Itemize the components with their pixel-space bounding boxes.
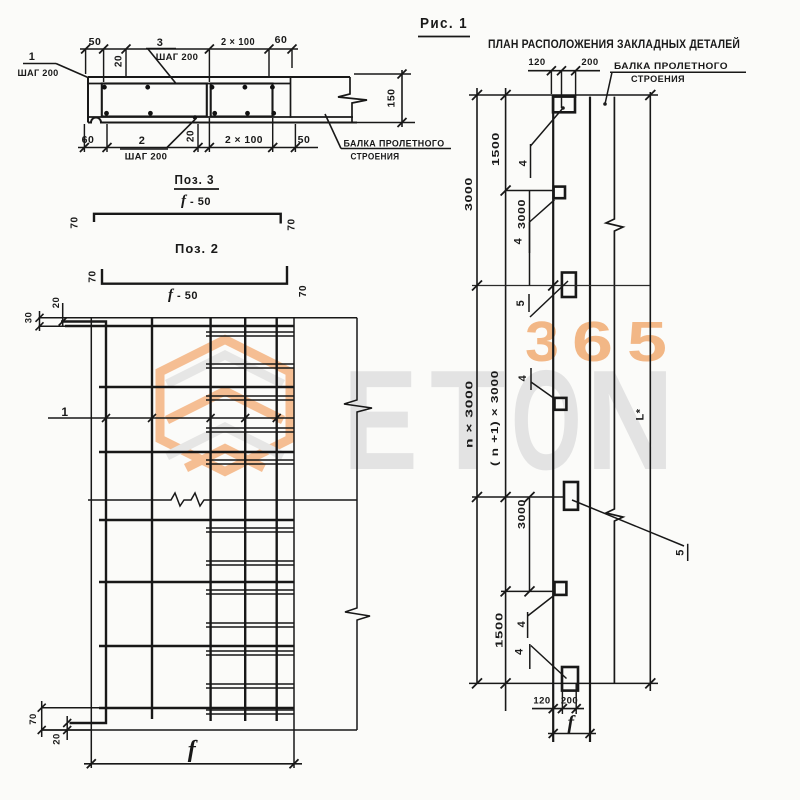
svg-text:70: 70 [298,285,309,297]
svg-text:1500: 1500 [490,132,502,166]
svg-text:Рис. 1: Рис. 1 [420,15,468,32]
svg-text:5: 5 [627,310,667,374]
svg-text:4: 4 [513,648,525,655]
svg-text:E: E [343,341,418,500]
svg-text:150: 150 [386,88,398,107]
svg-text:1: 1 [61,405,68,419]
svg-text:БАЛКА ПРОЛЕТНОГО: БАЛКА ПРОЛЕТНОГО [614,61,728,71]
svg-text:200: 200 [561,696,578,707]
svg-text:4: 4 [516,620,528,627]
svg-text:2 × 100: 2 × 100 [225,134,263,146]
svg-text:50: 50 [89,36,102,48]
svg-text:2: 2 [139,135,146,147]
svg-text:СТРОЕНИЯ: СТРОЕНИЯ [351,152,400,162]
svg-text:Поз. 3: Поз. 3 [175,173,215,187]
svg-text:ШАГ 200: ШАГ 200 [125,152,167,163]
svg-text:120: 120 [528,57,545,68]
svg-text:4: 4 [512,237,524,244]
svg-text:6: 6 [572,310,613,374]
svg-text:3000: 3000 [516,499,528,529]
svg-text:n × 3000: n × 3000 [464,380,476,448]
svg-text:4: 4 [517,159,529,166]
svg-text:f - 50: f - 50 [181,193,211,209]
svg-text:ПЛАН РАСПОЛОЖЕНИЯ ЗАКЛАДНЫХ: ПЛАН РАСПОЛОЖЕНИЯ ЗАКЛАДНЫХ ДЕТАЛЕЙ [488,38,740,51]
svg-text:30: 30 [23,312,34,324]
svg-text:( n +1) × 3000: ( n +1) × 3000 [489,370,501,466]
svg-text:60: 60 [275,34,288,46]
svg-text:СТРОЕНИЯ: СТРОЕНИЯ [631,74,685,84]
svg-text:4: 4 [517,374,529,381]
svg-text:50: 50 [298,134,311,146]
svg-text:5: 5 [675,549,687,556]
svg-text:20: 20 [51,297,62,309]
svg-text:1: 1 [29,51,36,63]
svg-text:ШАГ 200: ШАГ 200 [18,68,59,79]
svg-text:5: 5 [515,300,527,307]
svg-text:70: 70 [88,270,99,282]
svg-text:120: 120 [533,696,550,707]
svg-text:20: 20 [186,130,197,142]
svg-text:200: 200 [581,57,598,68]
svg-text:Поз. 2: Поз. 2 [175,242,219,256]
svg-text:ШАГ 200: ШАГ 200 [156,52,198,63]
svg-text:3: 3 [157,37,164,49]
svg-text:3000: 3000 [516,199,528,229]
svg-text:2 × 100: 2 × 100 [221,36,255,48]
svg-text:70: 70 [28,713,39,725]
svg-text:20: 20 [114,55,125,67]
svg-text:20: 20 [51,733,62,745]
svg-text:1500: 1500 [494,612,506,648]
svg-text:f - 50: f - 50 [168,287,198,303]
svg-text:БАЛКА ПРОЛЕТНОГО: БАЛКА ПРОЛЕТНОГО [344,139,445,149]
svg-text:70: 70 [287,218,298,230]
svg-text:L*: L* [634,408,646,420]
svg-text:70: 70 [70,216,81,228]
svg-text:60: 60 [82,134,95,146]
svg-text:3000: 3000 [463,177,475,211]
